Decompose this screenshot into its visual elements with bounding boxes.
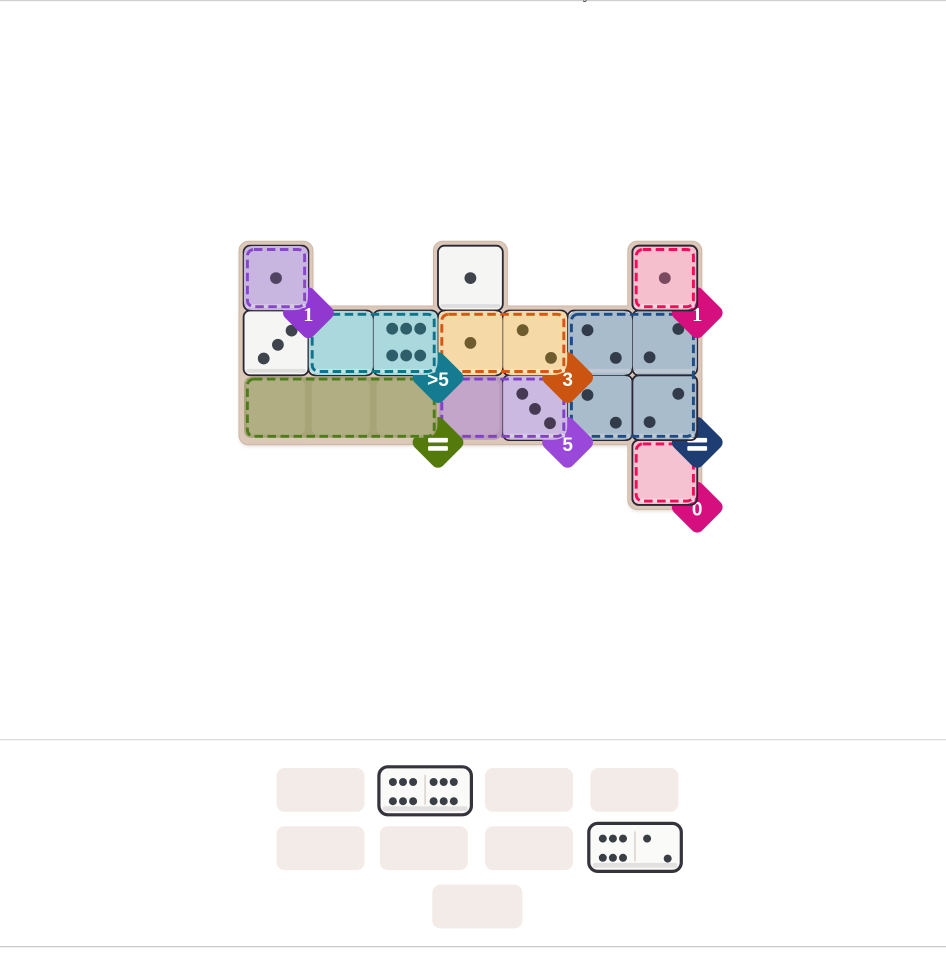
svg-text:3: 3 — [562, 370, 573, 391]
svg-text:y: y — [583, 0, 591, 3]
svg-text:0: 0 — [692, 500, 703, 521]
svg-text:5: 5 — [562, 435, 573, 456]
